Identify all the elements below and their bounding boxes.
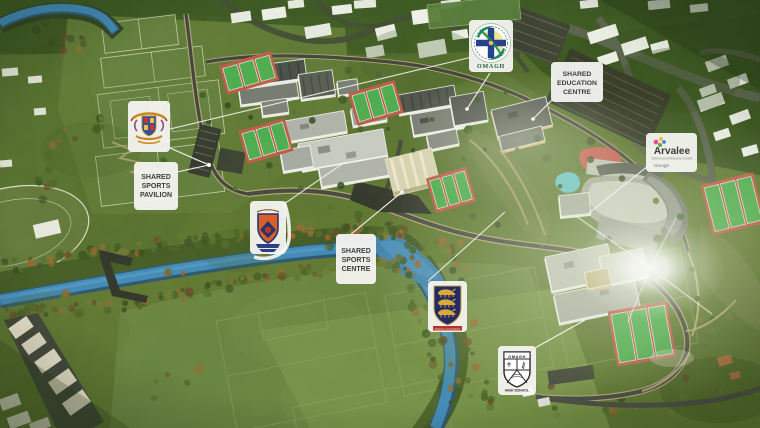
svg-text:School and Resource Centre: School and Resource Centre bbox=[652, 157, 693, 161]
svg-text:CENTRE: CENTRE bbox=[563, 89, 591, 96]
svg-text:SHARED: SHARED bbox=[341, 248, 371, 255]
svg-text:OMAGH: OMAGH bbox=[508, 354, 526, 359]
svg-text:PAVILION: PAVILION bbox=[140, 192, 172, 199]
svg-text:OMAGH ACADEMY: OMAGH ACADEMY bbox=[434, 327, 461, 331]
svg-text:CENTRE: CENTRE bbox=[342, 266, 371, 273]
svg-text:Omagh: Omagh bbox=[654, 163, 669, 168]
svg-text:OMAGH: OMAGH bbox=[477, 64, 505, 70]
svg-text:Arvalee: Arvalee bbox=[654, 146, 691, 157]
svg-text:SPORTS: SPORTS bbox=[142, 183, 171, 190]
svg-text:SHARED: SHARED bbox=[563, 71, 592, 78]
svg-text:SPORTS: SPORTS bbox=[342, 257, 371, 264]
svg-text:HIGH SCHOOL: HIGH SCHOOL bbox=[505, 389, 529, 393]
svg-text:SHARED: SHARED bbox=[141, 174, 171, 181]
svg-text:EDUCATION: EDUCATION bbox=[557, 80, 597, 87]
